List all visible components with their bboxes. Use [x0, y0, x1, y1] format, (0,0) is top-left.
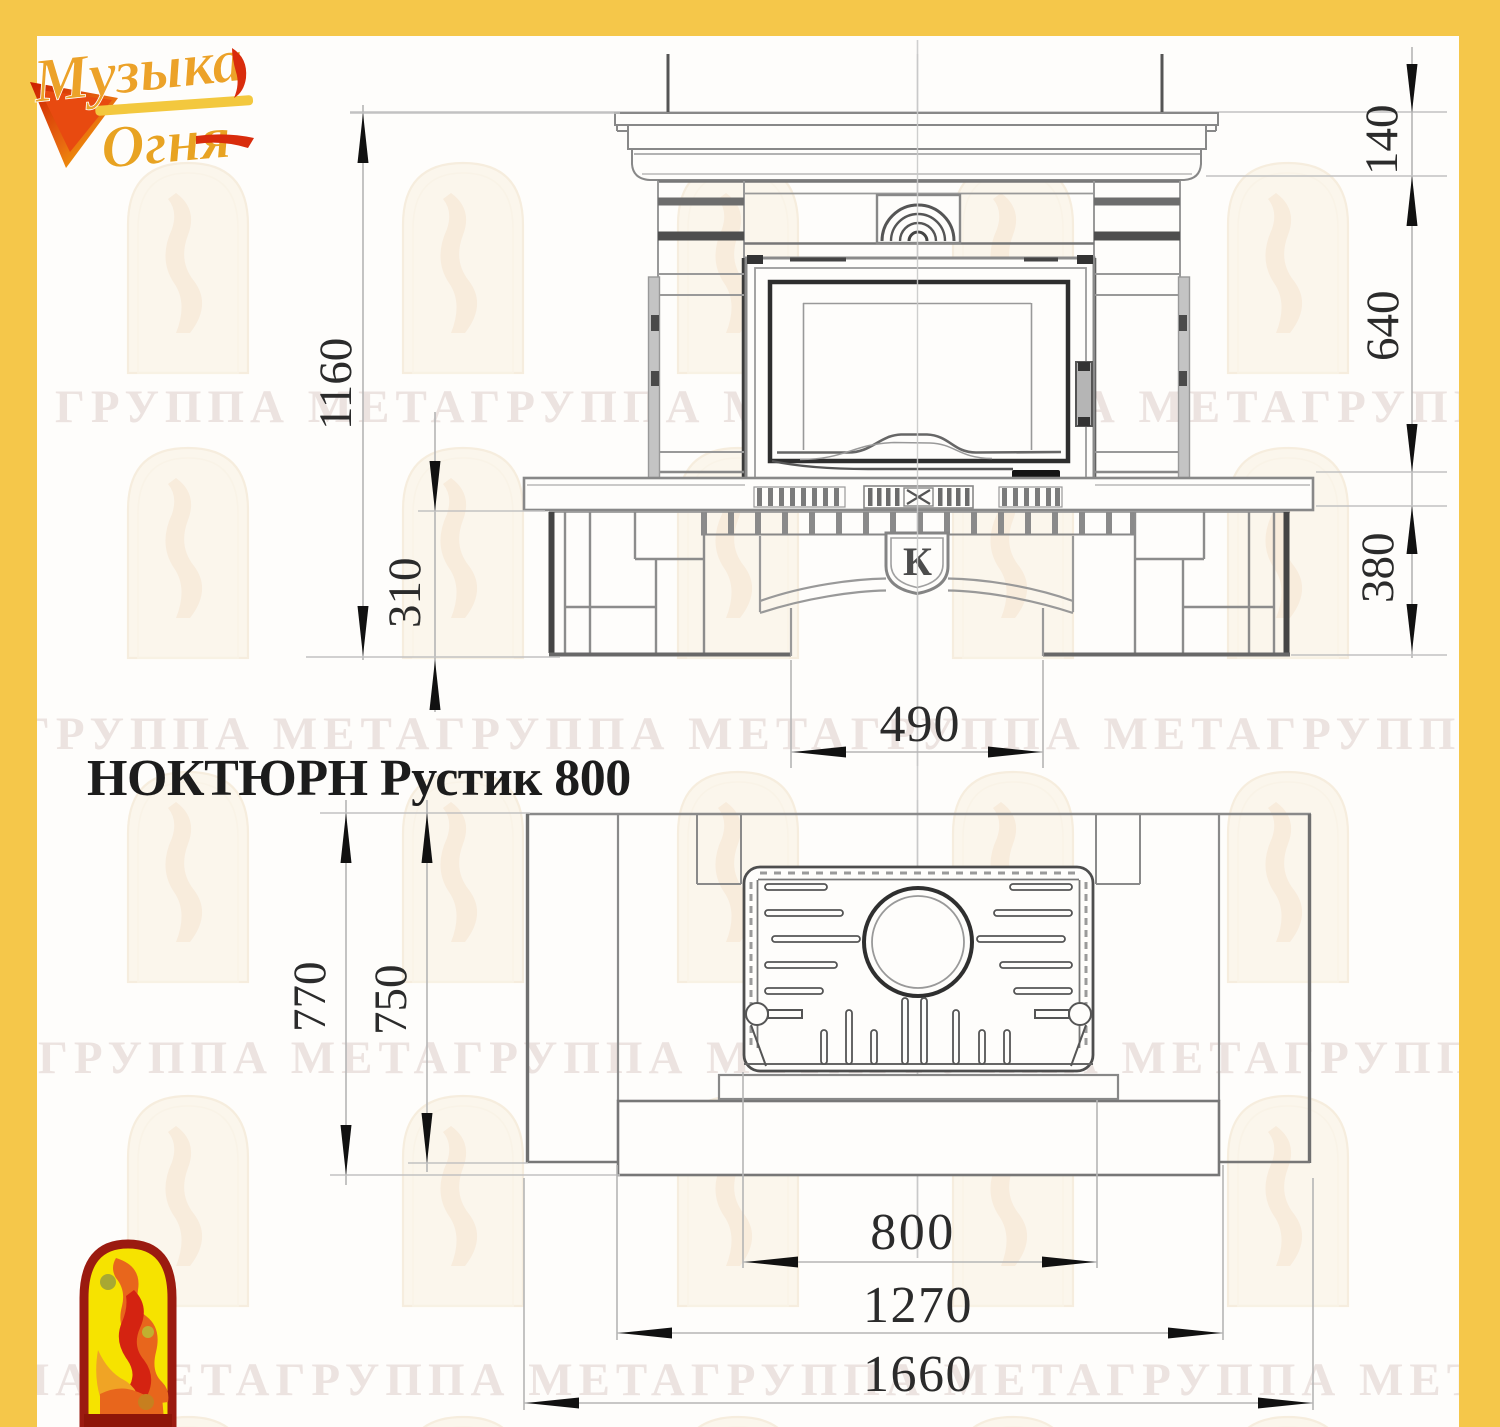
svg-text:НОКТЮРН Рустик 800: НОКТЮРН Рустик 800: [87, 750, 631, 807]
svg-text:380: 380: [1352, 533, 1404, 604]
svg-text:490: 490: [880, 696, 961, 753]
svg-text:800: 800: [870, 1204, 956, 1261]
svg-text:1660: 1660: [863, 1346, 973, 1403]
svg-text:ППА МЕТАГРУППА МЕТАГРУППА МЕТА: ППА МЕТАГРУППА МЕТАГРУППА МЕТАГРУППА МЕТ…: [0, 1354, 1500, 1406]
svg-text:640: 640: [1357, 291, 1409, 362]
svg-text:1270: 1270: [863, 1277, 973, 1334]
svg-text:1160: 1160: [310, 338, 362, 430]
svg-text:770: 770: [284, 962, 336, 1033]
svg-text:310: 310: [379, 558, 431, 629]
svg-text:140: 140: [1356, 105, 1408, 176]
svg-text:750: 750: [365, 965, 417, 1036]
